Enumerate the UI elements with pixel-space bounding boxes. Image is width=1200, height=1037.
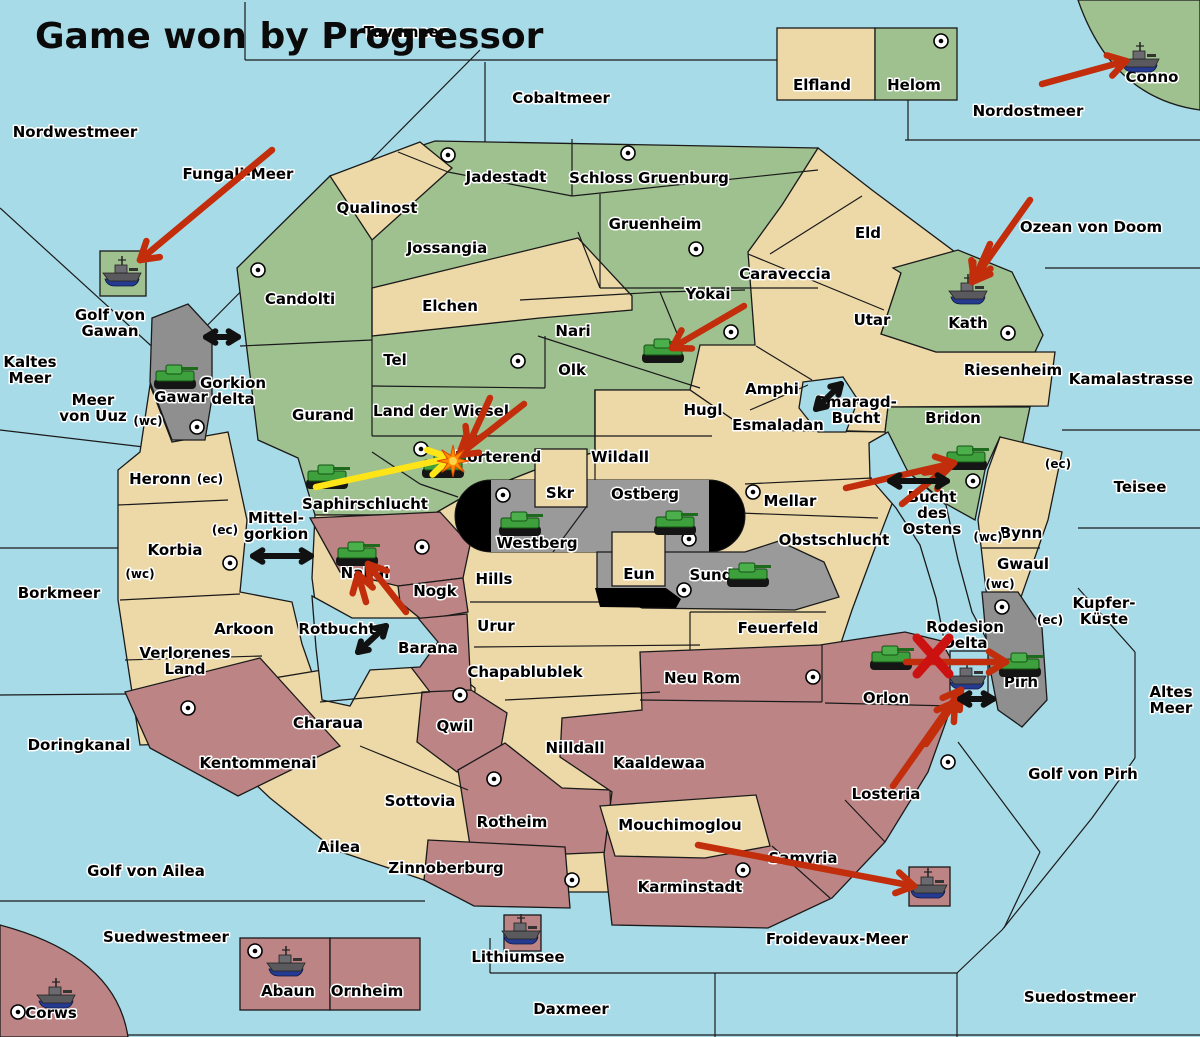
label-cobaltmeer: Cobaltmeer — [512, 89, 610, 107]
label-urur: Urur — [477, 617, 515, 635]
label-elchen: Elchen — [422, 297, 478, 315]
label-wc-bynn: (wc) — [973, 530, 1002, 544]
label-heronn: Heronn — [129, 470, 191, 488]
label-helom: Helom — [887, 76, 941, 94]
label-golf-von-gawan: Golf vonGawan — [75, 306, 145, 340]
label-froidevaux-meer: Froidevaux-Meer — [766, 930, 909, 948]
label-qwil: Qwil — [437, 717, 474, 735]
label-jadestadt: Jadestadt — [465, 168, 547, 186]
supply-center-bridon-coast — [966, 474, 980, 488]
label-esmaladan: Esmaladan — [732, 416, 824, 434]
label-zinnoberburg: Zinnoberburg — [388, 859, 504, 877]
label-saphirschlucht: Saphirschlucht — [302, 495, 428, 513]
label-gawar: Gawar — [154, 388, 208, 406]
label-kamalastrasse: Kamalastrasse — [1069, 370, 1193, 388]
label-wc-meer-von-uuz: (wc) — [133, 414, 162, 428]
supply-center-yokai — [724, 325, 738, 339]
label-westberg: Westberg — [496, 534, 577, 552]
label-ostberg: Ostberg — [611, 485, 679, 503]
supply-center-corws — [11, 1005, 25, 1019]
supply-center-tel — [511, 354, 525, 368]
label-chapablublek: Chapablublek — [467, 663, 583, 681]
label-eun: Eun — [623, 565, 655, 583]
label-qualinost: Qualinost — [337, 199, 418, 217]
label-rotbucht: Rotbucht — [298, 620, 375, 638]
label-korbia: Korbia — [147, 541, 202, 559]
label-utar: Utar — [854, 311, 891, 329]
supply-center-sund — [677, 583, 691, 597]
label-gwaul: Gwaul — [997, 555, 1049, 573]
label-abaun: Abaun — [261, 982, 315, 1000]
label-kupfer-kueste: Kupfer-Küste — [1072, 594, 1135, 628]
label-nari: Nari — [555, 322, 590, 340]
label-obstschlucht: Obstschlucht — [779, 531, 890, 549]
label-arkoon: Arkoon — [214, 620, 274, 638]
label-borkmeer: Borkmeer — [18, 584, 101, 602]
label-altes-meer: AltesMeer — [1149, 683, 1192, 717]
label-rotheim: Rotheim — [477, 813, 548, 831]
label-ec-teisee-side: (ec) — [1045, 457, 1071, 471]
label-sottovia: Sottovia — [385, 792, 456, 810]
label-bridon: Bridon — [925, 409, 981, 427]
label-lithiumsee: Lithiumsee — [471, 948, 564, 966]
supply-center-rotheim — [487, 772, 501, 786]
supply-center-nabai — [415, 540, 429, 554]
label-skr: Skr — [546, 484, 575, 502]
label-schloss-gruenburg: Schloss Gruenburg — [569, 169, 729, 187]
supply-center-rodesion-delta — [995, 600, 1009, 614]
supply-center-jadestadt — [441, 148, 455, 162]
label-ornheim: Ornheim — [331, 982, 403, 1000]
label-daxmeer: Daxmeer — [533, 1000, 609, 1018]
label-golf-von-ailea: Golf von Ailea — [87, 862, 205, 880]
supply-center-candolti — [251, 263, 265, 277]
label-teisee: Teisee — [1114, 478, 1167, 496]
supply-center-abaun — [248, 944, 262, 958]
label-riesenheim: Riesenheim — [964, 361, 1062, 379]
supply-center-helom — [934, 34, 948, 48]
label-losteria: Losteria — [852, 785, 921, 803]
label-jossangia: Jossangia — [406, 239, 488, 257]
label-charaua: Charaua — [293, 714, 363, 732]
supply-center-karminstadt — [736, 863, 750, 877]
supply-center-westberg — [496, 488, 510, 502]
label-amphi: Amphi — [745, 380, 799, 398]
label-nilldall: Nilldall — [545, 739, 604, 757]
label-elfland: Elfland — [793, 76, 851, 94]
label-olk: Olk — [558, 361, 587, 379]
label-golf-von-pirh: Golf von Pirh — [1028, 765, 1138, 783]
label-ec-kupfer: (ec) — [1037, 613, 1063, 627]
label-bynn: Bynn — [1000, 524, 1043, 542]
label-ailea: Ailea — [318, 838, 360, 856]
label-mouchimoglou: Mouchimoglou — [618, 816, 741, 834]
label-feuerfeld: Feuerfeld — [738, 619, 819, 637]
label-nordwestmeer: Nordwestmeer — [13, 123, 138, 141]
label-sund: Sund — [690, 566, 733, 584]
supply-center-mellar — [746, 485, 760, 499]
supply-center-zinnoberburg — [565, 873, 579, 887]
label-nordostmeer: Nordostmeer — [973, 102, 1084, 120]
label-ec-korbia: (ec) — [212, 523, 238, 537]
label-gruenheim: Gruenheim — [609, 215, 702, 233]
label-hugl: Hugl — [683, 401, 722, 419]
label-candolti: Candolti — [265, 290, 335, 308]
label-tel: Tel — [383, 351, 407, 369]
label-neu-rom: Neu Rom — [664, 669, 740, 687]
label-karminstadt: Karminstadt — [638, 878, 743, 896]
label-orlon: Orlon — [863, 689, 909, 707]
supply-center-gruenheim — [689, 242, 703, 256]
mark-norterend-explosion — [437, 445, 469, 477]
label-ozean-von-doom: Ozean von Doom — [1020, 218, 1162, 236]
supply-center-schloss-gruenburg — [621, 146, 635, 160]
label-kaltes-meer: KaltesMeer — [3, 353, 56, 387]
label-suedwestmeer: Suedwestmeer — [103, 928, 229, 946]
label-barana: Barana — [398, 639, 458, 657]
map-canvas: NordwestmeerTuvameerCobaltmeerNordostmee… — [0, 0, 1200, 1037]
supply-center-gawar — [190, 420, 204, 434]
label-gurand: Gurand — [292, 406, 354, 424]
label-caraveccia: Caraveccia — [739, 265, 831, 283]
label-wc-gwaul: (wc) — [985, 577, 1014, 591]
supply-center-neu-rom — [806, 670, 820, 684]
label-wc-korbia: (wc) — [125, 567, 154, 581]
supply-center-korbia — [223, 556, 237, 570]
label-hills: Hills — [476, 570, 513, 588]
label-ec-heronn: (ec) — [197, 472, 223, 486]
label-eld: Eld — [855, 224, 881, 242]
label-doringkanal: Doringkanal — [28, 736, 131, 754]
supply-center-losteria — [941, 755, 955, 769]
map-title: Game won by Progressor — [35, 16, 544, 57]
label-nogk: Nogk — [413, 582, 458, 600]
supply-center-qwil — [453, 688, 467, 702]
label-wildall: Wildall — [591, 448, 649, 466]
label-kaaldewaa: Kaaldewaa — [613, 754, 705, 772]
label-yokai: Yokai — [684, 285, 730, 303]
game-map: NordwestmeerTuvameerCobaltmeerNordostmee… — [0, 0, 1200, 1037]
region-sund-black-wedge[interactable] — [595, 588, 681, 608]
label-kath: Kath — [948, 314, 988, 332]
supply-center-kath — [1001, 326, 1015, 340]
label-mellar: Mellar — [764, 492, 818, 510]
label-suedostmeer: Suedostmeer — [1024, 988, 1137, 1006]
label-kentommenai: Kentommenai — [199, 754, 316, 772]
label-mittel-gorkion: Mittel-gorkion — [244, 509, 309, 543]
supply-center-kentommenai — [181, 701, 195, 715]
